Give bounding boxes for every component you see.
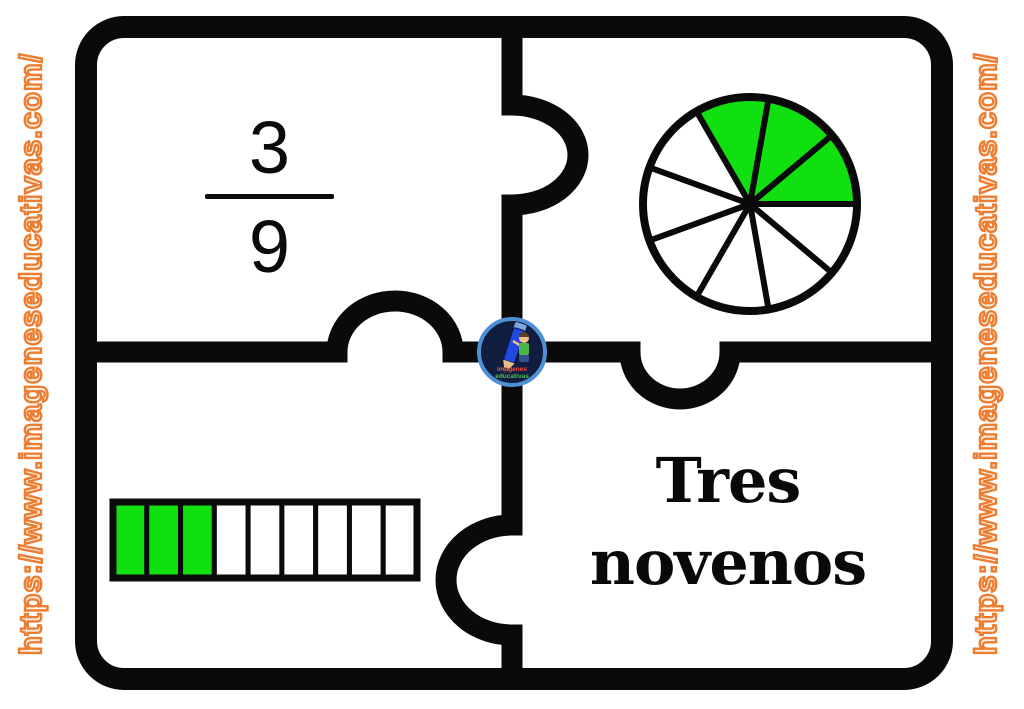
watermark-url-right: https://www.imageneseducativas.com/: [968, 53, 1004, 655]
bar-segment: [383, 502, 417, 578]
fraction-display: 3 9: [205, 106, 334, 289]
fraction-name-label: Tres novenos: [557, 440, 899, 604]
bar-segment: [282, 502, 316, 578]
fraction-strip-chart: [113, 502, 417, 578]
bar-segment: [316, 502, 350, 578]
bar-segment: [349, 502, 383, 578]
fraction-bar: [205, 194, 334, 199]
worksheet: imágenes educativas 3 9 Tres novenos htt…: [0, 0, 1024, 709]
bar-segment-shaded: [181, 502, 215, 578]
fraction-numerator: 3: [205, 106, 334, 190]
bar-segment-shaded: [113, 502, 147, 578]
logo-text-line2: educativas: [495, 373, 529, 380]
site-logo: imágenes educativas: [479, 319, 545, 385]
fraction-denominator: 9: [205, 205, 334, 289]
bar-segment-shaded: [147, 502, 181, 578]
watermark-url-left: https://www.imageneseducativas.com/: [13, 53, 49, 655]
fraction-name-line1: Tres: [557, 440, 899, 522]
bar-segment: [214, 502, 248, 578]
fraction-name-line2: novenos: [557, 522, 899, 604]
bar-segment: [248, 502, 282, 578]
logo-text-line1: imágenes: [497, 366, 527, 373]
